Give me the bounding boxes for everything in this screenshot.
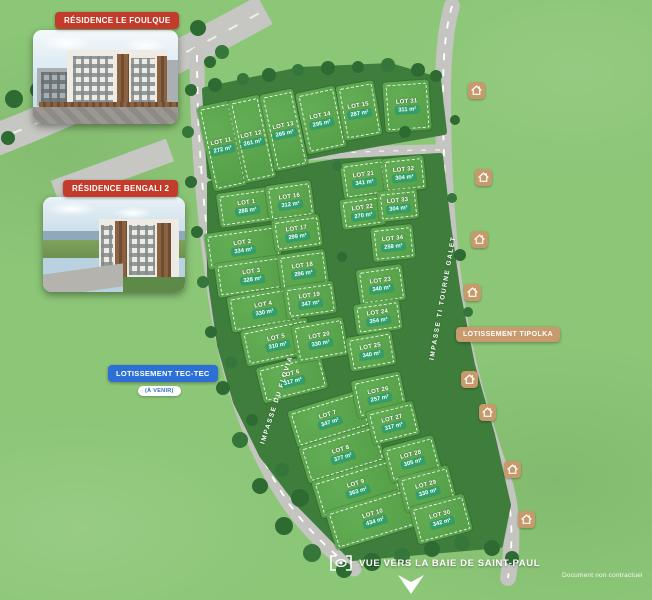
site-plan-map: LOT 1 288 m² LOT 2 334 m² LOT 3 328 m² L… [0,0,652,600]
house-icon [504,461,521,478]
house-icon [471,231,488,248]
house-icon [479,404,496,421]
house-icon [468,82,485,99]
house-markers-layer [0,0,652,600]
house-icon [475,169,492,186]
house-icon [461,371,478,388]
house-icon [518,511,535,528]
eye-view-icon [330,555,352,571]
house-icon [464,284,481,301]
view-caption-text: VUE VERS LA BAIE DE SAINT-PAUL [359,558,540,569]
down-arrow-icon [398,575,424,595]
view-caption: VUE VERS LA BAIE DE SAINT-PAUL [330,555,540,571]
disclaimer-text: Document non contractuel [562,572,643,579]
